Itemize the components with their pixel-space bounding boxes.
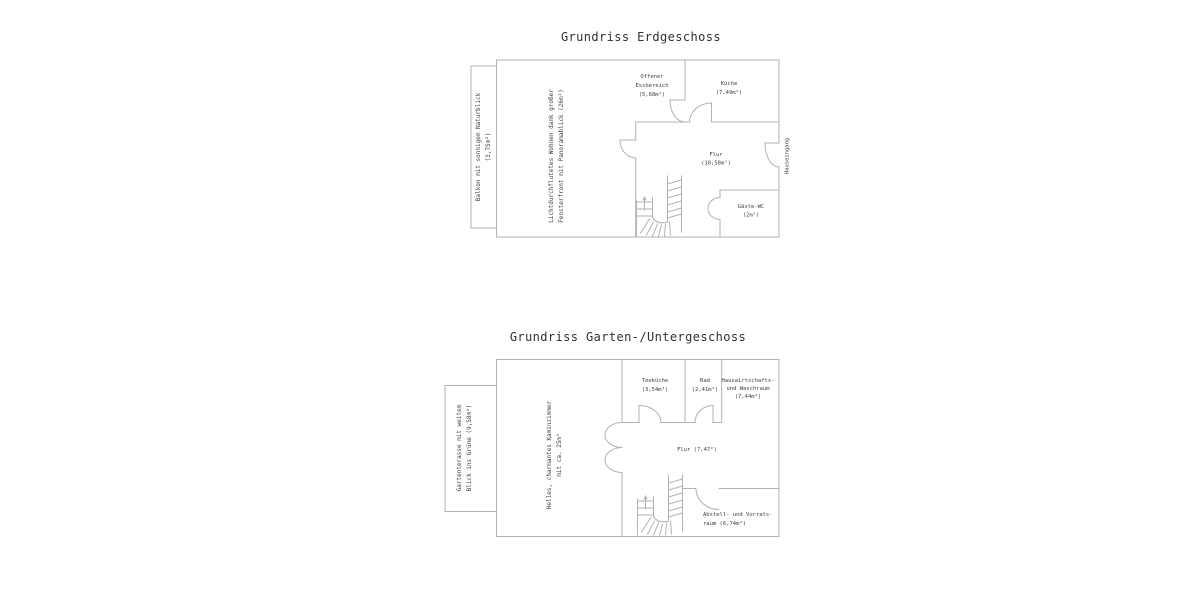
entrance-label: Hauseingang: [785, 138, 791, 174]
hall-ug-label: Flur (7,47²): [677, 446, 717, 453]
floorplan-canvas: Grundriss Erdgeschoss Offener Essbereich…: [0, 0, 1200, 600]
floorplan-untergeschoss: Grundriss Garten-/Untergeschoss Teeküche…: [445, 330, 779, 537]
terrace-label-1: Gartenterasse mit weitem: [456, 404, 463, 491]
kitchen-label-2: (7,49m²): [716, 89, 743, 96]
fireroom-label-1: Helles, charmantes Kaminzimmer: [546, 400, 553, 509]
bath-label-1: Bad: [700, 378, 710, 384]
storage-label-2: raum (6,74m²): [703, 520, 746, 527]
wc-label-1: Gäste-WC: [738, 204, 765, 210]
floorplan-erdgeschoss: Grundriss Erdgeschoss Offener Essbereich…: [471, 30, 791, 237]
teakitchen-label-1: Teeküche: [642, 378, 669, 384]
untergeschoss-title: Grundriss Garten-/Untergeschoss: [510, 330, 746, 344]
dining-label-2: Essbereich: [635, 83, 668, 89]
terrace-label-2: Blick ins Grüne (9,58m²): [466, 405, 473, 492]
hall-label-2: (10,58m²): [701, 160, 731, 167]
staircase-ug: [638, 475, 683, 535]
erdgeschoss-title: Grundriss Erdgeschoss: [561, 30, 721, 44]
dining-label-1: Offener: [640, 74, 664, 80]
staircase-eg: [637, 176, 682, 236]
floorplan-page: Grundriss Erdgeschoss Offener Essbereich…: [0, 0, 1200, 600]
teakitchen-label-2: (3,54m²): [642, 386, 669, 393]
wc-label-2: (2m²): [743, 212, 760, 219]
bath-label-2: (2,41m²): [692, 386, 719, 393]
utility-label-1: Hauswirtschafts-: [722, 378, 775, 384]
balcony-label-1: Balkon mit sonnigem Naturblick: [475, 92, 482, 201]
balcony-label-2: (3,75m²): [485, 133, 492, 162]
storage-label-1: Abstell- und Vorrats-: [703, 512, 773, 518]
utility-label-2: und Waschraum: [726, 386, 770, 392]
hall-label-1: Flur: [709, 152, 723, 158]
living-label-2: Fensterfront mit Panoramablick (26m²): [558, 89, 565, 223]
kitchen-label-1: Küche: [721, 81, 738, 87]
living-label-1: Lichtdurchflutetes Wohnen dank großer: [548, 89, 555, 223]
dining-label-3: (5,68m²): [639, 91, 666, 98]
utility-label-3: (7,44m²): [735, 393, 762, 400]
fireroom-label-2: mit ca. 25m²: [556, 433, 563, 476]
